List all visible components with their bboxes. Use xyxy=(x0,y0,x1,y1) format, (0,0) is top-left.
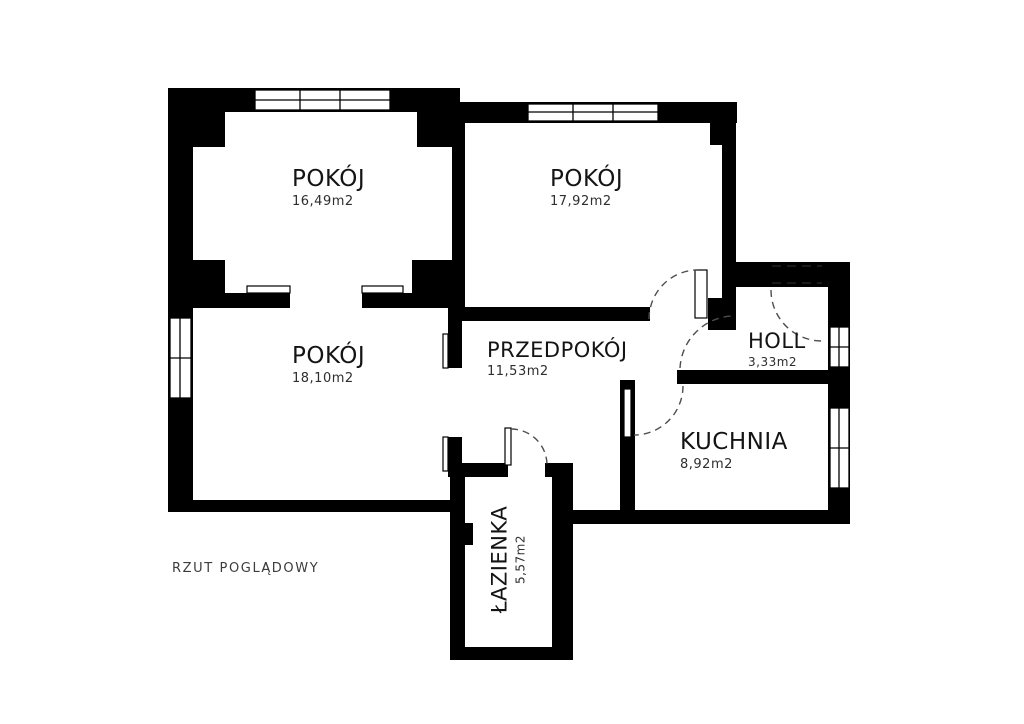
door-arc-kuchnia xyxy=(634,386,683,435)
wall xyxy=(168,293,290,308)
wall xyxy=(573,510,850,524)
room-label-pokoj-3: POKÓJ 18,10m2 xyxy=(292,344,365,386)
room-area: 16,49m2 xyxy=(292,194,365,209)
door-jamb xyxy=(443,437,448,471)
window-holl xyxy=(830,327,849,367)
room-label-lazienka: ŁAZIENKA 5,57m2 xyxy=(488,485,527,635)
room-area: 3,33m2 xyxy=(748,355,806,369)
door-leaf-kuchnia xyxy=(624,389,631,437)
room-label-pokoj-2: POKÓJ 17,92m2 xyxy=(550,167,623,209)
room-label-kuchnia: KUCHNIA 8,92m2 xyxy=(680,430,788,472)
room-label-przedpokoj: PRZEDPOKÓJ 11,53m2 xyxy=(487,339,628,379)
wall xyxy=(677,370,830,384)
wall-pier xyxy=(193,260,225,307)
wall xyxy=(552,463,573,660)
window-pokoj-3 xyxy=(170,318,191,398)
wall-pier xyxy=(443,283,465,308)
wall-pier xyxy=(193,112,225,147)
room-area: 11,53m2 xyxy=(487,364,628,379)
door-jamb xyxy=(362,286,403,293)
door-jamb xyxy=(247,286,290,293)
room-area: 18,10m2 xyxy=(292,371,365,386)
wall xyxy=(448,308,462,368)
room-area: 8,92m2 xyxy=(680,457,788,472)
window-pokoj-1 xyxy=(255,90,390,110)
wall xyxy=(450,463,465,660)
floor-plan: POKÓJ 16,49m2 POKÓJ 17,92m2 POKÓJ 18,10m… xyxy=(0,0,1024,724)
door-leaf-lazienka xyxy=(505,428,511,465)
room-area: 5,57m2 xyxy=(514,485,528,635)
room-label-holl: HOLL 3,33m2 xyxy=(748,330,806,369)
plan-caption: RZUT POGLĄDOWY xyxy=(172,561,319,576)
room-name: PRZEDPOKÓJ xyxy=(487,339,628,361)
door-jamb xyxy=(443,334,448,368)
door-leaf-pokoj-2 xyxy=(695,270,707,318)
room-label-pokoj-1: POKÓJ 16,49m2 xyxy=(292,167,365,209)
wall-pier xyxy=(710,123,736,145)
wall-pier xyxy=(417,112,465,147)
room-name: KUCHNIA xyxy=(680,430,788,454)
room-name: POKÓJ xyxy=(292,167,365,191)
door-arc-lazienka xyxy=(511,429,547,465)
window-pokoj-2 xyxy=(528,104,658,121)
room-area: 17,92m2 xyxy=(550,194,623,209)
room-name: HOLL xyxy=(748,330,806,352)
room-name: POKÓJ xyxy=(550,167,623,191)
wall xyxy=(450,647,573,660)
wall xyxy=(465,523,473,545)
window-kuchnia xyxy=(830,408,849,488)
room-name: POKÓJ xyxy=(292,344,365,368)
wall xyxy=(452,307,650,321)
wall-pier xyxy=(708,298,722,330)
room-name: ŁAZIENKA xyxy=(488,485,510,635)
door-arc-pokoj-2 xyxy=(649,270,698,319)
wall xyxy=(168,500,462,512)
